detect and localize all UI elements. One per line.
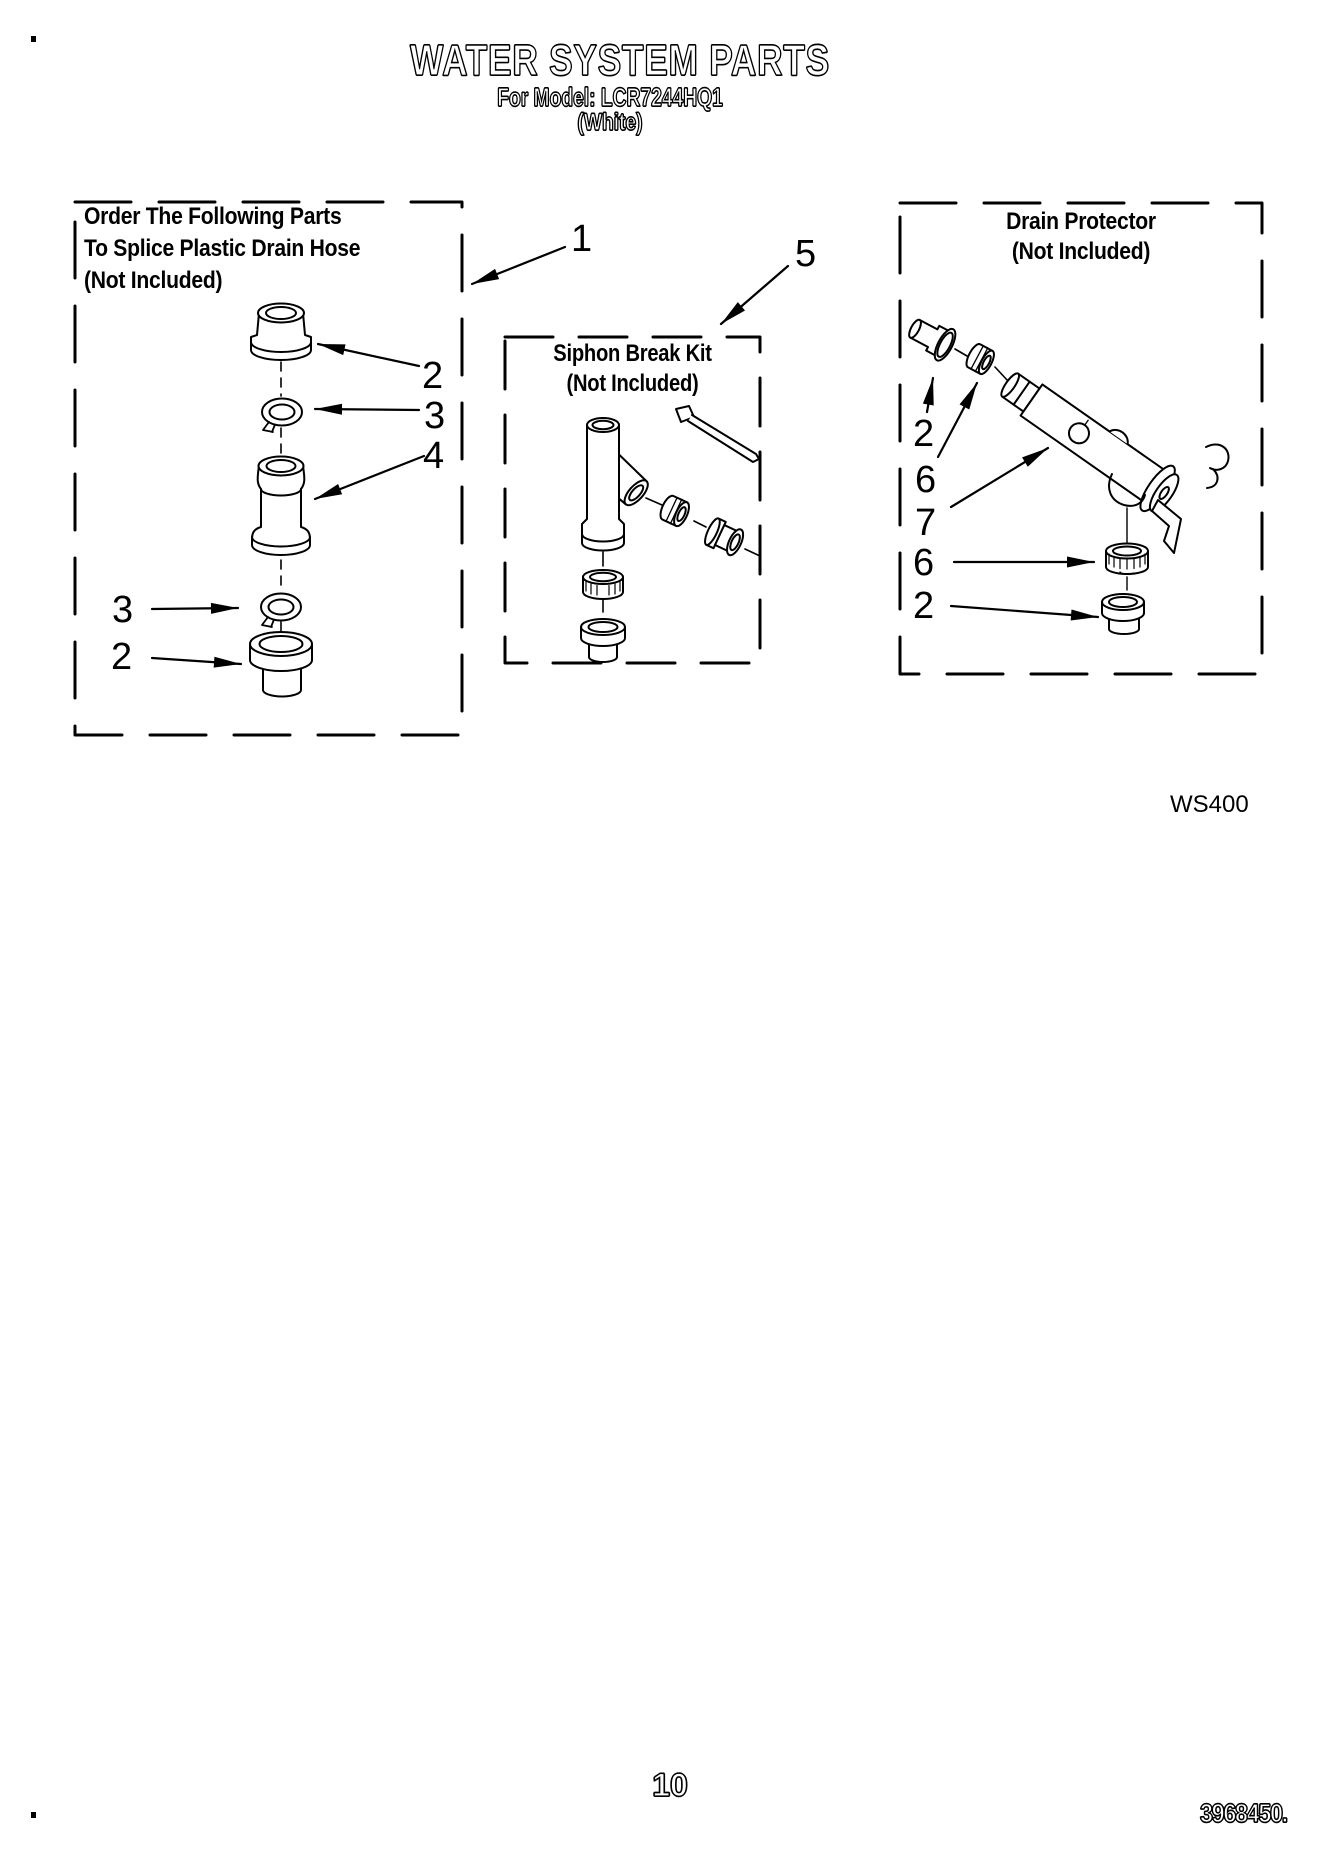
document-number: 3968450.: [1200, 1800, 1287, 1826]
siphon-box-title-line1: Siphon Break Kit: [525, 339, 739, 369]
parts-catalog-page: WATER SYSTEM PARTS For Model: LCR7244HQ1…: [0, 0, 1339, 1849]
arrow-splice-2-bottom: [152, 658, 241, 664]
splice-box-title: Order The Following Parts To Splice Plas…: [84, 201, 418, 297]
arrow-item-5: [721, 266, 788, 324]
arrow-drain-7: [951, 448, 1048, 507]
registration-mark-bottom: [31, 1812, 36, 1818]
arrow-drain-2-bottom: [951, 606, 1098, 617]
arrow-item-1: [472, 247, 565, 284]
arrow-drain-6-top: [938, 383, 977, 457]
callout-splice-4: 4: [423, 437, 444, 475]
callout-drain-2-top: 2: [913, 415, 934, 453]
color-line: (White): [122, 111, 1098, 135]
page-number: 10: [640, 1769, 700, 1801]
arrow-splice-2-top: [318, 344, 419, 366]
page-title: WATER SYSTEM PARTS: [124, 39, 1116, 83]
splice-box-title-line2: To Splice Plastic Drain Hose: [84, 233, 418, 265]
callout-drain-2-bottom: 2: [913, 587, 934, 625]
siphon-box-title: Siphon Break Kit (Not Included): [525, 339, 739, 399]
callout-drain-6-top: 6: [915, 461, 936, 499]
arrow-splice-3-top: [315, 409, 419, 410]
siphon-parts-drawing: [581, 406, 760, 662]
callout-splice-3-bottom: 3: [112, 591, 133, 629]
arrow-splice-3-bottom: [152, 608, 238, 609]
drain-parts-drawing: [903, 311, 1228, 634]
drain-box-title-line1: Drain Protector: [922, 207, 1241, 237]
splice-box-title-line3: (Not Included): [84, 265, 418, 297]
callout-drain-7: 7: [915, 504, 936, 542]
callout-splice-3-top: 3: [424, 397, 445, 435]
registration-mark-top: [31, 36, 36, 42]
callout-splice-2-bottom: 2: [111, 638, 132, 676]
drain-box-title: Drain Protector (Not Included): [922, 207, 1241, 267]
splice-box-title-line1: Order The Following Parts: [84, 201, 418, 233]
callout-item-5: 5: [795, 235, 816, 273]
callout-drain-6-bottom: 6: [913, 544, 934, 582]
arrow-splice-4: [315, 456, 424, 499]
drain-box-title-line2: (Not Included): [922, 237, 1241, 267]
splice-parts-drawing: [250, 304, 312, 697]
diagram-code: WS400: [1170, 793, 1249, 817]
arrow-drain-2-top: [927, 378, 933, 412]
siphon-box-title-line2: (Not Included): [525, 369, 739, 399]
model-line: For Model: LCR7244HQ1: [159, 84, 1062, 110]
callout-item-1: 1: [571, 220, 592, 258]
callout-splice-2-top: 2: [422, 357, 443, 395]
